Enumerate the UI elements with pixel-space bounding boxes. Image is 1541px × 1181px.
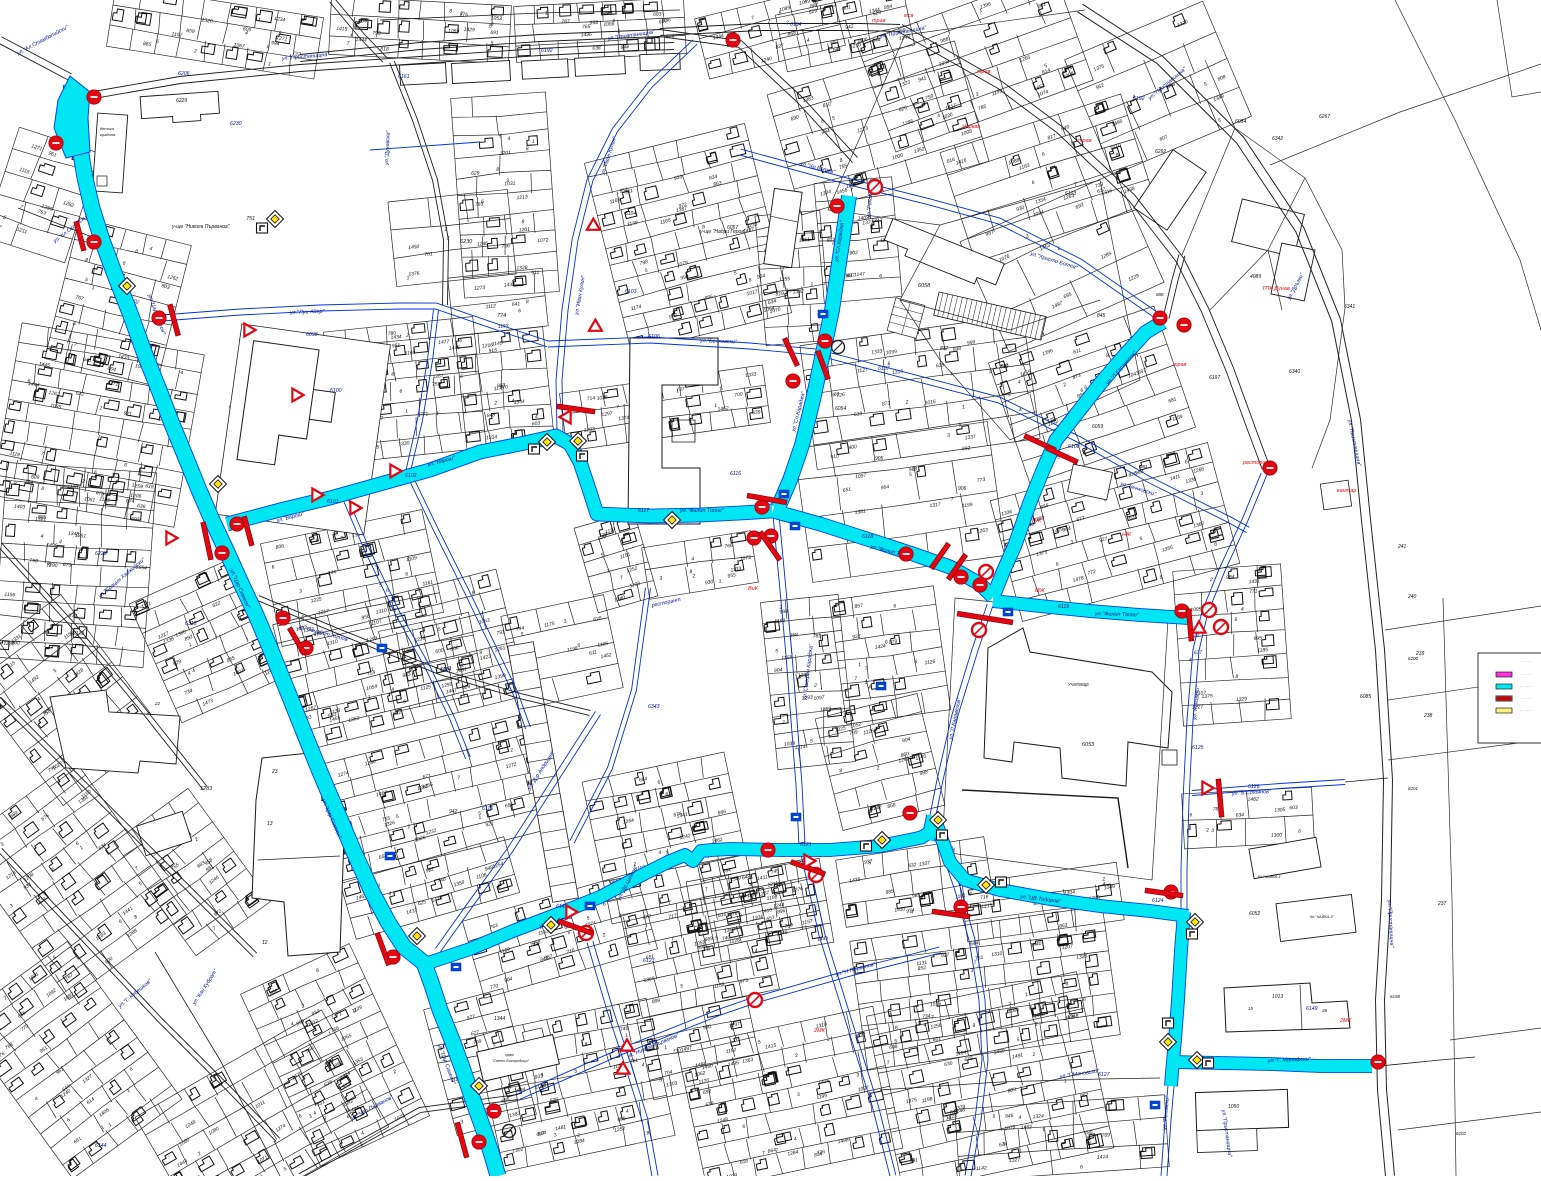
svg-text:881: 881 [1140,464,1148,469]
svg-text:1013: 1013 [1272,994,1283,1000]
svg-text:6124: 6124 [1152,898,1164,904]
svg-text:1305: 1305 [1274,807,1286,814]
svg-text:6102: 6102 [405,473,417,479]
svg-text:1314: 1314 [486,434,498,441]
svg-text:995: 995 [1253,636,1262,643]
svg-text:1482: 1482 [1247,796,1259,803]
svg-text:. . . . . .: . . . . . . [1520,695,1532,700]
svg-text:988: 988 [908,466,917,473]
svg-text:641: 641 [512,301,521,308]
svg-text:793: 793 [372,30,381,36]
svg-text:23: 23 [271,769,278,775]
svg-text:6127: 6127 [1098,1072,1111,1078]
svg-text:1321: 1321 [35,516,47,523]
svg-text:984: 984 [1226,574,1235,581]
svg-text:6192: 6192 [1133,96,1145,102]
svg-text:6292: 6292 [1155,149,1166,155]
svg-text:у-ще "Надри Геров": у-ще "Надри Геров" [699,229,746,235]
svg-text:8: 8 [449,8,452,14]
svg-text:836: 836 [662,17,671,23]
svg-text:911: 911 [531,270,540,277]
svg-text:3: 3 [1211,828,1214,834]
svg-text:6126: 6126 [1248,784,1260,790]
svg-text:храм: храм [504,1053,514,1057]
svg-text:673: 673 [63,562,72,569]
svg-text:трав: трав [1078,138,1092,144]
svg-text:6054: 6054 [835,406,846,412]
svg-text:6149: 6149 [1306,1006,1318,1012]
svg-text:6197: 6197 [1209,375,1220,381]
svg-text:трав: трав [1173,362,1187,368]
svg-text:780: 780 [1084,1130,1093,1137]
svg-text:1: 1 [545,10,548,16]
svg-text:6228: 6228 [95,551,107,557]
svg-text:944: 944 [620,45,629,51]
svg-text:ул."Филип Тотю": ул."Филип Тотю" [679,508,725,514]
svg-text:761: 761 [975,955,984,962]
svg-text:603: 603 [1289,805,1298,811]
svg-text:1188: 1188 [774,618,786,625]
svg-text:1142: 1142 [976,1165,987,1172]
svg-text:6201: 6201 [1408,786,1419,791]
svg-text:1031: 1031 [504,181,516,188]
svg-text:1429: 1429 [464,27,476,34]
svg-text:704: 704 [358,18,367,24]
svg-text:. . . . . .: . . . . . . [1520,707,1532,712]
svg-text:6117: 6117 [638,508,650,514]
svg-text:1376: 1376 [408,271,420,278]
svg-text:5: 5 [491,40,494,46]
svg-text:ТПК Дунав: ТПК Дунав [1262,286,1290,292]
svg-text:5: 5 [350,33,353,39]
svg-text:МЖ: МЖ [1035,588,1046,594]
svg-text:6343: 6343 [648,704,660,710]
svg-text:946: 946 [1005,1113,1014,1120]
svg-text:756: 756 [501,243,510,250]
svg-text:1344: 1344 [494,1016,505,1022]
svg-text:900: 900 [848,444,857,451]
svg-text:751: 751 [246,216,255,222]
svg-text:993: 993 [497,382,506,389]
svg-text:15: 15 [1248,1006,1254,1011]
svg-text:1332: 1332 [792,289,804,296]
svg-text:902: 902 [849,250,858,257]
svg-text:1361: 1361 [799,237,811,244]
svg-text:999: 999 [967,339,976,346]
svg-text:241: 241 [1397,544,1407,550]
svg-text:4089: 4089 [1250,274,1261,280]
svg-text:1053: 1053 [491,15,503,22]
svg-text:6085: 6085 [1360,694,1371,700]
svg-text:1050: 1050 [1228,1104,1239,1110]
svg-text:774: 774 [497,313,506,319]
svg-text:градина: градина [100,132,116,137]
svg-text:873: 873 [882,400,891,407]
svg-text:1492: 1492 [408,244,420,251]
svg-text:6230: 6230 [230,121,242,127]
svg-text:1163: 1163 [498,323,510,330]
svg-text:716: 716 [980,894,989,901]
svg-text:2МК: 2МК [1339,1018,1352,1024]
svg-text:958: 958 [590,20,599,26]
svg-text:1444: 1444 [355,37,367,44]
svg-text:6058: 6058 [918,283,931,289]
svg-text:1431: 1431 [1248,579,1260,586]
svg-text:651: 651 [842,487,851,494]
svg-text:701: 701 [424,251,433,258]
svg-text:6202: 6202 [1456,1131,1467,1136]
svg-text:840: 840 [1000,364,1009,370]
svg-text:1314: 1314 [794,744,806,751]
svg-text:. . . . . .: . . . . . . [1520,658,1532,663]
svg-text:1112: 1112 [485,303,496,310]
svg-text:674: 674 [126,498,135,505]
svg-text:6267: 6267 [1319,114,1330,120]
svg-text:6107: 6107 [878,366,891,372]
svg-text:1145: 1145 [492,340,504,347]
svg-text:1246: 1246 [477,241,489,248]
svg-text:. . . . . .: . . . . . . [1520,683,1532,688]
svg-text:1324: 1324 [1032,1113,1044,1120]
svg-text:927: 927 [941,952,950,959]
svg-text:1273: 1273 [474,285,486,292]
svg-text:6057: 6057 [727,225,738,231]
svg-text:783: 783 [812,633,821,640]
svg-text:трав: трав [977,69,991,75]
svg-text:798: 798 [29,558,38,565]
svg-text:942: 942 [449,809,458,815]
svg-text:608: 608 [889,1044,898,1051]
svg-text:634: 634 [1236,812,1245,818]
svg-text:6342: 6342 [1272,136,1283,142]
svg-text:1329: 1329 [1236,696,1248,703]
svg-text:954: 954 [880,484,889,491]
svg-text:1496: 1496 [46,542,58,549]
svg-text:771: 771 [1249,588,1258,595]
svg-text:6103: 6103 [1065,191,1076,197]
svg-text:906: 906 [958,486,967,492]
svg-text:1300: 1300 [1271,832,1283,839]
svg-text:. . . . . .: . . . . . . [1520,671,1532,676]
svg-text:1156: 1156 [4,592,15,599]
svg-text:6194: 6194 [790,22,802,28]
svg-text:1462: 1462 [1021,1124,1033,1131]
svg-text:6103: 6103 [625,289,637,295]
svg-text:922: 922 [852,633,861,640]
svg-text:1432: 1432 [503,282,515,289]
svg-text:6119: 6119 [1058,604,1069,610]
svg-text:697: 697 [846,273,855,280]
svg-text:726: 726 [836,392,845,399]
svg-text:1446: 1446 [449,345,461,352]
svg-text:6106: 6106 [648,334,660,340]
svg-text:бл."ЧАЙКА-3": бл."ЧАЙКА-3" [1310,915,1335,919]
svg-text:888: 888 [1156,292,1164,297]
svg-text:1201: 1201 [500,150,512,157]
svg-text:1158: 1158 [781,655,793,662]
svg-text:905: 905 [875,456,884,462]
svg-text:6059: 6059 [1092,424,1103,430]
svg-text:НЖ: НЖ [1122,532,1132,538]
svg-text:1334: 1334 [513,399,525,406]
svg-text:951: 951 [392,343,401,350]
svg-text:998: 998 [779,609,788,616]
svg-text:1147: 1147 [854,271,865,278]
svg-text:6198: 6198 [1390,994,1401,999]
svg-text:787: 787 [561,19,570,25]
svg-text:2МК: 2МК [813,1028,826,1034]
svg-text:26: 26 [1321,1008,1328,1013]
svg-text:6315: 6315 [185,621,197,627]
svg-text:759: 759 [432,381,441,388]
svg-text:6192: 6192 [541,48,553,54]
svg-text:1108: 1108 [67,484,78,491]
svg-text:1185: 1185 [1257,647,1268,654]
svg-text:1317: 1317 [871,217,883,224]
svg-text:773: 773 [977,477,986,484]
svg-text:610: 610 [854,411,863,418]
svg-text:1330: 1330 [398,440,410,447]
svg-text:635: 635 [936,362,945,369]
svg-text:975: 975 [459,12,468,18]
svg-text:6125: 6125 [1192,745,1204,751]
svg-text:6144: 6144 [95,1143,107,1149]
svg-text:у-ще "Никола Първанов": у-ще "Никола Първанов" [171,224,230,230]
svg-text:2: 2 [1205,827,1209,833]
svg-text:6108: 6108 [1068,444,1080,450]
svg-text:734: 734 [922,1013,931,1020]
svg-text:879: 879 [889,639,898,646]
svg-text:1251: 1251 [75,533,87,540]
svg-text:1369: 1369 [820,706,832,713]
svg-text:2: 2 [1209,577,1213,583]
svg-text:609: 609 [31,474,40,481]
svg-text:6161: 6161 [398,74,410,80]
svg-text:6: 6 [1189,812,1192,818]
svg-text:6123: 6123 [643,958,655,964]
svg-text:3: 3 [644,46,647,52]
svg-text:769: 769 [1101,1132,1110,1139]
svg-text:6104: 6104 [625,211,636,217]
svg-text:6114: 6114 [440,667,451,673]
svg-text:6101: 6101 [327,499,339,505]
svg-text:1066: 1066 [603,21,615,28]
svg-text:240: 240 [1407,594,1417,600]
svg-text:6052: 6052 [1249,911,1260,917]
svg-text:6053: 6053 [1082,742,1095,748]
svg-text:кантар: кантар [1337,488,1356,494]
svg-text:6340: 6340 [1289,369,1300,375]
svg-text:бл."ЧАЙКА-1": бл."ЧАЙКА-1" [1258,875,1283,879]
svg-text:737: 737 [676,386,685,393]
svg-text:1059: 1059 [448,28,460,35]
svg-text:6121: 6121 [800,842,812,848]
svg-text:5: 5 [489,24,492,30]
svg-text:12: 12 [262,940,268,946]
svg-text:1327: 1327 [1009,1157,1021,1164]
svg-text:Черква: Черква [962,124,980,130]
svg-text:2: 2 [81,479,85,485]
svg-text:837: 837 [940,346,949,352]
svg-text:1097: 1097 [813,695,825,702]
svg-text:692: 692 [962,445,971,452]
svg-text:трав: трав [872,18,886,24]
svg-text:6115: 6115 [482,806,493,812]
svg-text:1201: 1201 [519,227,531,234]
svg-text:1403: 1403 [14,504,26,511]
svg-text:6206: 6206 [178,71,190,77]
svg-text:6341: 6341 [1344,304,1355,310]
svg-text:607: 607 [131,516,140,523]
svg-text:1414: 1414 [1097,1154,1109,1161]
svg-text:683: 683 [653,11,662,17]
svg-text:6084: 6084 [1235,119,1246,125]
svg-text:ул."Луи Айер": ул."Луи Айер" [289,308,326,316]
svg-text:1038: 1038 [784,741,796,748]
svg-text:237: 237 [1437,901,1447,907]
svg-text:238: 238 [1423,713,1433,719]
svg-text:6098: 6098 [306,332,318,338]
svg-text:780: 780 [387,330,396,337]
svg-text:1095: 1095 [1190,607,1202,614]
svg-text:1168: 1168 [404,350,416,357]
svg-text:714: 714 [586,395,595,402]
svg-text:6230: 6230 [460,239,473,245]
svg-text:904: 904 [774,667,783,674]
svg-text:1477: 1477 [438,339,450,346]
svg-text:"Свето Богородица": "Свето Богородица" [492,1059,530,1063]
svg-text:838: 838 [952,346,961,353]
svg-text:ВиК: ВиК [748,586,759,592]
svg-text:845: 845 [1097,313,1106,319]
svg-text:629: 629 [471,170,480,177]
svg-text:848: 848 [487,412,496,419]
svg-text:1255: 1255 [779,276,791,283]
svg-text:6229: 6229 [176,98,187,104]
svg-text:801: 801 [932,1036,941,1043]
svg-text:915: 915 [488,348,497,355]
svg-text:6116: 6116 [730,471,741,477]
svg-text:1072: 1072 [537,237,549,244]
svg-text:детска: детска [100,126,115,131]
svg-text:1415: 1415 [336,26,348,33]
svg-text:7: 7 [347,41,350,47]
svg-text:1213: 1213 [516,194,528,201]
svg-text:6: 6 [1298,829,1301,835]
svg-text:700: 700 [734,391,743,398]
svg-text:691: 691 [490,30,499,36]
svg-text:6100: 6100 [330,388,342,394]
svg-text:6118: 6118 [862,534,873,540]
svg-text:УЧИЛИЩЕ: УЧИЛИЩЕ [1068,682,1089,687]
svg-text:639: 639 [752,409,761,416]
svg-text:910: 910 [830,453,839,460]
svg-text:НЖ: НЖ [1032,518,1042,524]
svg-text:1267: 1267 [432,373,444,380]
svg-text:857: 857 [854,603,863,610]
svg-text:6200: 6200 [1408,656,1419,661]
svg-text:мсв: мсв [904,13,913,19]
svg-text:22: 22 [154,701,161,706]
svg-text:793: 793 [475,201,484,208]
svg-text:13: 13 [267,821,273,827]
svg-text:603: 603 [532,421,541,428]
